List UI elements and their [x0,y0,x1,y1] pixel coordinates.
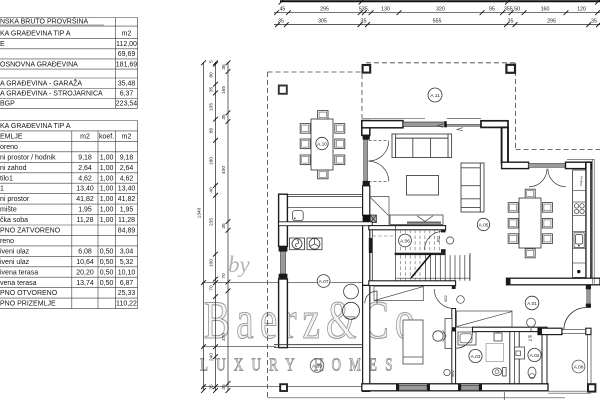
svg-text:9,18: 9,18 [78,154,92,161]
svg-text:1,95: 1,95 [78,207,92,214]
svg-text:4,62: 4,62 [78,175,92,182]
svg-text:6,87: 6,87 [120,280,134,287]
svg-text:1,00: 1,00 [100,207,114,214]
svg-text:2,64: 2,64 [78,165,92,172]
svg-text:m2: m2 [80,134,90,141]
svg-text:PNO PRIZEMLJE: PNO PRIZEMLJE [0,301,56,308]
svg-text:70: 70 [209,285,215,291]
svg-text:A.09: A.09 [312,363,322,369]
svg-text:41,82: 41,82 [76,196,94,203]
svg-text:0,50: 0,50 [100,249,114,256]
svg-text:0,50: 0,50 [100,259,114,266]
svg-text:1,00: 1,00 [100,165,114,172]
svg-text:305: 305 [318,18,327,24]
svg-text:35: 35 [209,87,215,93]
svg-text:A.02: A.02 [530,353,540,359]
svg-text:295: 295 [547,18,556,24]
svg-text:35: 35 [508,18,514,24]
svg-text:KA GRAĐEVINA TIP A: KA GRAĐEVINA TIP A [0,31,71,38]
svg-text:0,50: 0,50 [100,269,114,276]
svg-text:120: 120 [577,6,586,12]
svg-text:45: 45 [279,6,285,12]
svg-text:by: by [228,252,251,277]
svg-text:reno: reno [0,238,14,245]
svg-text:1,00: 1,00 [100,217,114,224]
svg-text:35: 35 [361,18,367,24]
svg-text:400: 400 [221,166,227,174]
svg-text:295: 295 [320,6,329,12]
svg-text:35: 35 [278,18,284,24]
svg-text:370: 370 [221,333,227,341]
svg-text:5: 5 [209,60,215,63]
svg-text:vena terasa: vena terasa [0,280,37,287]
svg-text:95: 95 [489,6,495,12]
svg-text:1,00: 1,00 [100,196,114,203]
svg-text:35: 35 [221,114,227,120]
svg-text:2,64: 2,64 [120,165,134,172]
svg-text:3,04: 3,04 [120,249,134,256]
svg-text:A.05: A.05 [479,222,489,228]
svg-text:iveni ulaz: iveni ulaz [0,259,30,266]
svg-text:6,37: 6,37 [120,91,134,98]
svg-text:11,28: 11,28 [77,217,94,224]
svg-text:235: 235 [209,218,215,226]
svg-text:1,00: 1,00 [100,175,114,182]
svg-text:A.11: A.11 [430,93,440,99]
svg-text:ni prostor: ni prostor [0,196,30,203]
svg-text:1: 1 [0,186,4,193]
svg-text:60/2: 60/2 [451,370,455,376]
svg-text:oreno: oreno [0,144,18,151]
svg-text:A GRAĐEVINA - GARAŽA: A GRAĐEVINA - GARAŽA [0,79,82,88]
svg-text:0,50: 0,50 [100,280,114,287]
svg-text:35,48: 35,48 [118,81,136,88]
svg-text:35: 35 [221,223,227,229]
svg-text:180: 180 [209,157,215,165]
svg-text:60/2: 60/2 [444,295,448,301]
svg-text:13,40: 13,40 [76,186,94,193]
svg-text:4,62: 4,62 [120,175,134,182]
svg-text:koef.: koef. [99,134,114,141]
svg-text:13,74: 13,74 [76,280,94,287]
svg-text:A.08: A.08 [574,364,584,370]
svg-text:A.01: A.01 [527,301,537,307]
svg-text:160: 160 [541,6,550,12]
svg-text:PNO ZATVORENO: PNO ZATVORENO [0,228,61,235]
svg-text:35: 35 [591,18,597,24]
svg-text:m2: m2 [122,31,132,38]
svg-text:25,33: 25,33 [118,290,136,297]
svg-text:5,32: 5,32 [120,259,134,266]
svg-text:LUXURY HOMES: LUXURY HOMES [200,356,401,376]
svg-text:165: 165 [221,86,227,94]
svg-text:čka soba: čka soba [0,217,28,224]
svg-text:85: 85 [209,128,215,134]
svg-text:40: 40 [209,187,215,193]
svg-text:ni zahod: ni zahod [0,165,27,172]
svg-text:KA GRAĐEVINA TIP A: KA GRAĐEVINA TIP A [0,123,71,130]
svg-text:60/2: 60/2 [437,236,441,242]
svg-text:NSKA BRUTO PROVRŠINA: NSKA BRUTO PROVRŠINA [0,16,89,25]
svg-text:A.03: A.03 [471,354,481,360]
svg-text:355,50: 355,50 [504,6,520,12]
svg-text:6,08: 6,08 [78,249,92,256]
svg-text:9,18: 9,18 [120,154,134,161]
svg-text:41,82: 41,82 [118,196,136,203]
svg-text:ni prostor / hodnik: ni prostor / hodnik [0,154,56,161]
svg-text:Perilica: Perilica [580,176,584,186]
svg-text:13,40: 13,40 [118,186,136,193]
svg-text:PNO OTVORENO: PNO OTVORENO [0,290,58,297]
svg-text:100: 100 [209,259,215,267]
svg-text:iveni ulaz: iveni ulaz [0,249,30,256]
svg-text:1340: 1340 [197,207,203,218]
svg-text:10,64: 10,64 [76,259,94,266]
svg-text:ivena terasa: ivena terasa [0,269,38,276]
svg-text:74: 74 [528,338,532,342]
svg-text:Baerz&Co: Baerz&Co [204,291,421,351]
svg-text:A GRAĐEVINA - STROJARNICA: A GRAĐEVINA - STROJARNICA [0,91,103,98]
svg-text:1,95: 1,95 [120,207,134,214]
svg-text:535,: 535, [359,6,369,12]
svg-text:A.07: A.07 [319,279,329,285]
svg-text:m2: m2 [122,134,132,141]
svg-text:70: 70 [221,273,227,279]
svg-text:240: 240 [209,353,215,361]
svg-text:11,28: 11,28 [118,217,135,224]
svg-text:mište: mište [0,207,17,214]
svg-text:1,00: 1,00 [100,186,114,193]
svg-text:20,20: 20,20 [76,269,94,276]
svg-text:112,00: 112,00 [116,41,137,48]
svg-text:84,89: 84,89 [118,228,136,235]
svg-text:1,00: 1,00 [100,154,114,161]
svg-text:EMLJE: EMLJE [0,134,23,141]
svg-text:130: 130 [381,6,390,12]
svg-text:223,54: 223,54 [116,101,138,108]
svg-text:35: 35 [221,64,227,70]
svg-text:10,10: 10,10 [118,269,136,276]
svg-text:105: 105 [209,103,215,111]
svg-text:110,22: 110,22 [116,301,137,308]
svg-text:OSNOVNA GRAĐEVINA: OSNOVNA GRAĐEVINA [0,61,78,68]
svg-text:80: 80 [209,72,215,78]
svg-text:E: E [0,41,5,48]
svg-text:555: 555 [433,18,442,24]
svg-text:320: 320 [436,6,445,12]
svg-text:A.10: A.10 [317,141,327,147]
svg-text:69,69: 69,69 [118,51,136,58]
svg-text:tilo1: tilo1 [0,175,13,182]
svg-text:BGP: BGP [0,101,15,108]
svg-text:A.06: A.06 [400,238,410,244]
svg-text:181,69: 181,69 [116,61,138,68]
